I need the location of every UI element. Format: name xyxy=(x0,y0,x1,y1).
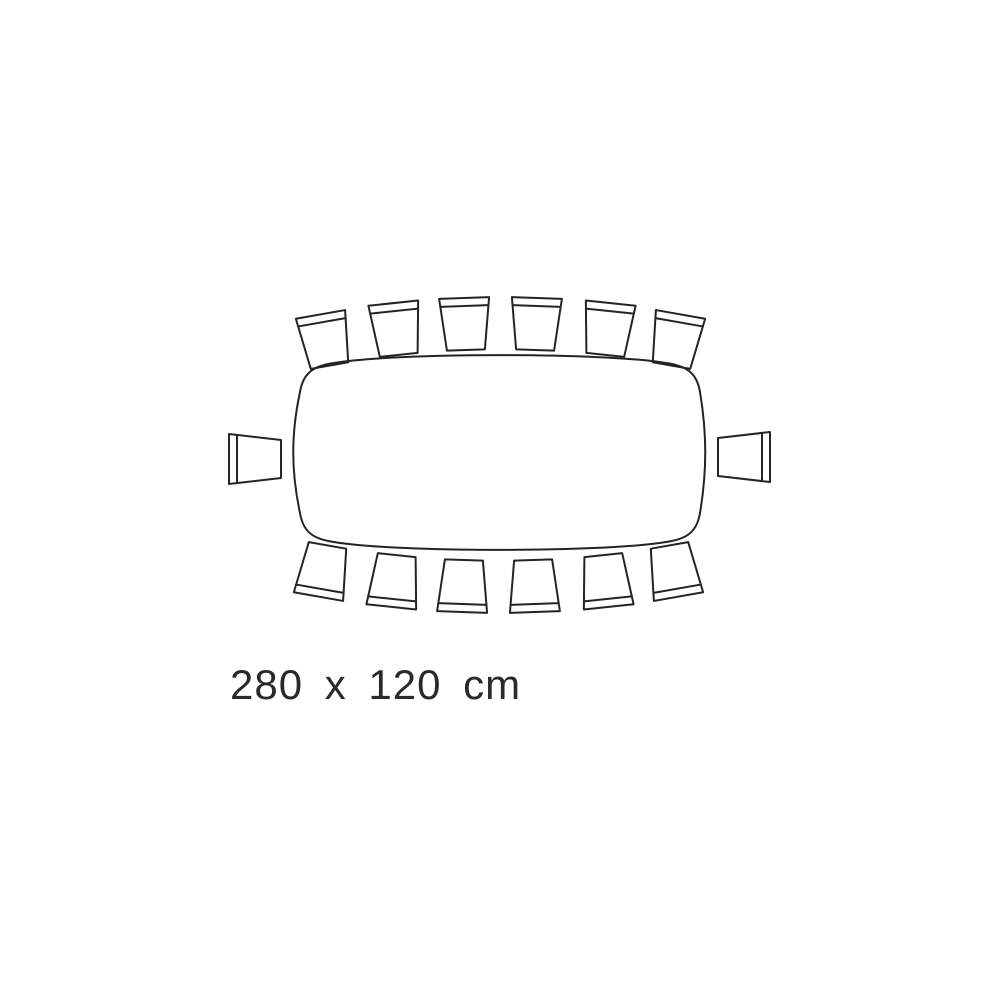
chair-top-5 xyxy=(580,301,635,358)
chair-left-end xyxy=(229,434,281,484)
chair-bottom-5 xyxy=(578,553,633,610)
chair-bottom-4 xyxy=(508,559,560,613)
chair-right-end xyxy=(718,432,770,482)
seating-diagram: 280 x 120 cm xyxy=(0,0,1000,1000)
chair-top-3 xyxy=(439,297,491,351)
dimension-label: 280 x 120 cm xyxy=(230,664,521,706)
chair-bottom-2 xyxy=(366,553,421,610)
chair-bottom-3 xyxy=(437,559,489,613)
chair-bottom-1 xyxy=(294,541,352,601)
chair-bottom-6 xyxy=(645,541,703,601)
table-top xyxy=(293,355,705,550)
chair-top-2 xyxy=(368,301,423,358)
diagram-canvas xyxy=(0,0,1000,1000)
chair-top-4 xyxy=(510,297,562,351)
